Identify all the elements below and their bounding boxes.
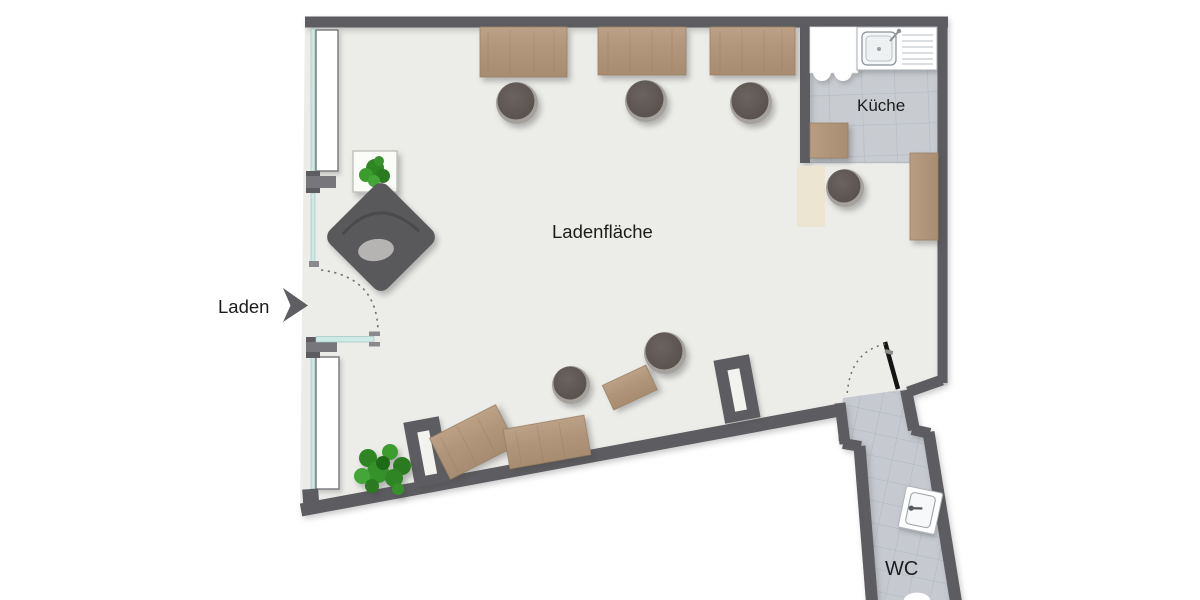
glass-pane-upper [311, 29, 315, 171]
stool-4 [552, 366, 590, 404]
window-sill-lower [316, 357, 339, 489]
wc-wall-left-upper [840, 403, 845, 444]
stool-3 [730, 82, 772, 124]
table-3 [710, 27, 795, 75]
label-kitchen: Küche [857, 96, 905, 115]
entrance-door-hinge [309, 261, 319, 267]
stool-5 [644, 332, 686, 374]
sideboard [910, 153, 938, 240]
label-entrance: Laden [218, 296, 269, 317]
label-shop-floor: Ladenfläche [552, 221, 653, 242]
table-2 [598, 27, 686, 75]
entrance-door-leaf [316, 337, 374, 343]
glass-pane-lower [311, 357, 315, 489]
entrance-door-cap-bottom [369, 342, 380, 347]
floorplan-svg: Laden Ladenfläche Küche WC [0, 0, 1200, 600]
wc-wall-left-step [843, 444, 861, 447]
window-sill-upper [316, 30, 338, 171]
label-wc: WC [885, 558, 918, 580]
floor-mat [797, 166, 825, 227]
floorplan-canvas: Laden Ladenfläche Küche WC [0, 0, 1200, 600]
fridge [810, 27, 858, 81]
wc-wall-right-upper [906, 390, 914, 430]
stool-2 [625, 80, 667, 122]
glass-panel-mid [311, 193, 315, 264]
wall-corner-bottom-left [302, 488, 320, 513]
kitchen-stool [826, 169, 864, 207]
kitchen-cabinet [810, 123, 848, 158]
stool-1 [496, 82, 538, 124]
kitchen-sink [857, 27, 937, 70]
table-1 [480, 27, 567, 77]
entrance-door-cap-top [369, 332, 380, 337]
wc-sink [898, 486, 943, 535]
